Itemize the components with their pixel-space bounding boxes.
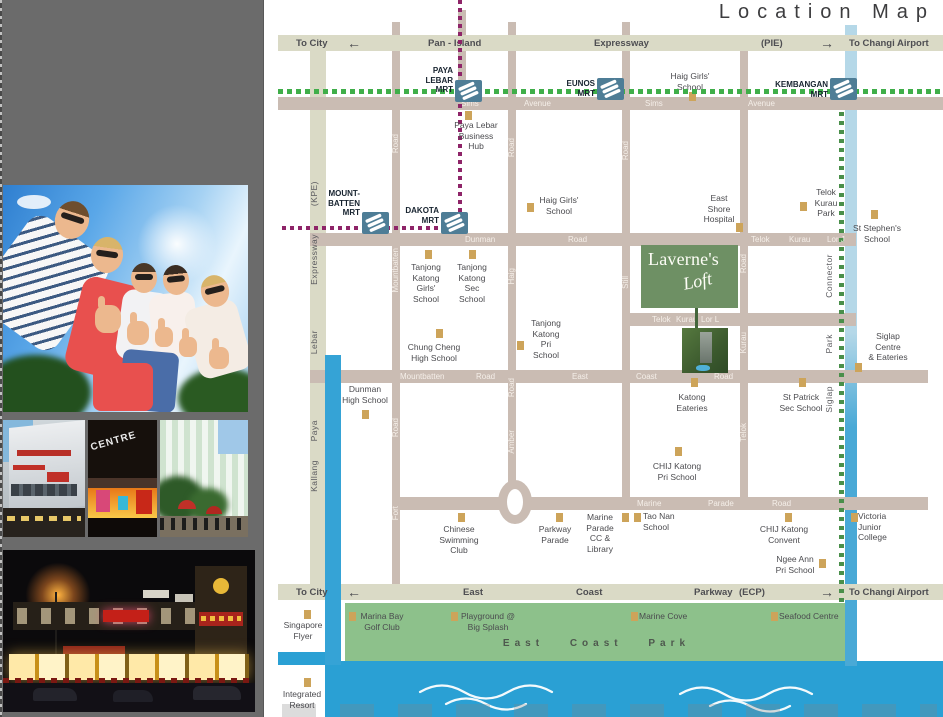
head-3 [131, 263, 157, 293]
road-name-label: Kurau [789, 235, 810, 244]
vertical-road-label: Telok [739, 423, 748, 442]
vertical-road-label: Still [621, 276, 630, 289]
expressway-label: Parkway [694, 587, 733, 598]
right-arrow-icon: → [820, 36, 834, 50]
st-patrick-sec-school-label: St Patrick Sec School [772, 392, 830, 413]
amber-roundabout [498, 480, 532, 524]
left-arrow-icon: ← [347, 585, 361, 599]
road-name-label: Lor J [827, 235, 845, 244]
cyan-sign [118, 496, 128, 510]
expressway-label: To Changi Airport [849, 587, 929, 598]
left-arrow-icon: ← [347, 36, 361, 50]
vertical-road-label: Road [621, 141, 630, 160]
kembangan-mrt-icon [830, 78, 857, 100]
victoria-junior-college-label: Victoria Junior College [858, 511, 898, 543]
road-name-label: Telok [751, 235, 770, 244]
mall-lights [7, 516, 81, 521]
siglap-canal-lower [845, 600, 857, 666]
vertical-road-label: Fort [391, 506, 400, 520]
mrt-logo-icon [597, 78, 624, 100]
car-2 [113, 690, 153, 702]
right-arrow-icon: → [820, 585, 834, 599]
dakota-mrt-label: DAKOTA MRT [394, 206, 439, 225]
red-sign [136, 490, 152, 514]
vertical-road-label: Haig [507, 268, 516, 284]
car-3 [193, 686, 241, 700]
road-name-label: Avenue [524, 99, 551, 108]
marine-parade-cc-library-marker [622, 513, 629, 522]
road-name-label: Coast [636, 372, 657, 381]
red-shorts [93, 363, 153, 411]
property-pool [696, 365, 710, 371]
tanjong-katong-pri-school-label: Tanjong Katong Pri School [524, 318, 568, 361]
singapore-flyer-marker [304, 610, 311, 619]
mall-window-band [11, 484, 77, 496]
tao-nan-school-label: Tao Nan School [643, 511, 683, 532]
mall-red-band-2 [13, 465, 45, 470]
thumbs-up-3 [155, 327, 173, 347]
crowd [160, 518, 248, 530]
photo-lifestyle-thumbs-up [3, 185, 248, 412]
parkway-parade-label: Parkway Parade [531, 524, 579, 545]
tanjong-katong-girls-school-label: Tanjong Katong Girls' School [402, 262, 450, 305]
vertical-road-label: Road [507, 138, 516, 157]
vertical-road-label: Road [507, 378, 516, 397]
mountbatten-mrt-icon [362, 212, 389, 234]
banner-characters [201, 616, 241, 621]
expressway-label: Expressway [594, 38, 649, 49]
marine-parade-cc-library-label: Marine Parade CC & Library [578, 512, 622, 555]
round-sign [213, 578, 229, 594]
vertical-road-label: Kurau [739, 332, 748, 353]
road-kpe [310, 35, 326, 600]
neon-sign [103, 610, 149, 622]
thumbs-up-4 [179, 337, 197, 357]
expressway-label: East [463, 587, 483, 598]
centre-sign-text: CENTRE [89, 430, 137, 454]
ngee-ann-pri-school-label: Ngee Ann Pri School [772, 554, 818, 575]
haig-girls-school-label: Haig Girls' School [536, 195, 582, 216]
awning-red [63, 646, 125, 654]
road-name-label: Road [476, 372, 495, 381]
eunos-mrt-icon [597, 78, 624, 100]
thumbs-up-5 [209, 347, 229, 369]
playground-big-splash-marker [451, 612, 458, 621]
expressway-label: (ECP) [739, 587, 765, 598]
vertical-road-label: Kallang [309, 460, 319, 492]
integrated-resort-marker [304, 678, 311, 687]
expressway-label: (PIE) [761, 38, 783, 49]
logo-sub: Loft [681, 268, 714, 295]
location-map-page: CENTRE [0, 0, 943, 717]
siglap-park-connector-line [839, 112, 844, 602]
marina-bay-golf-club-marker [349, 612, 356, 621]
katong-eateries-label: Katong Eateries [666, 392, 718, 413]
dakota-mrt-icon [441, 212, 468, 234]
sky-patch-2 [218, 420, 248, 454]
road-name-label: Avenue [748, 99, 775, 108]
property-photo [682, 328, 728, 373]
road-name-label: Marine [637, 499, 661, 508]
paya-lebar-business-hub-label: Paya Lebar Business Hub [447, 120, 505, 152]
mrt-logo-icon [455, 80, 482, 102]
telok-kurau-park-label: Telok Kurau Park [808, 187, 844, 219]
chinese-swimming-club-label: Chinese Swimming Club [432, 524, 486, 556]
paya-lebar-business-hub-marker [465, 111, 472, 120]
dashed-edge [0, 0, 2, 717]
singapore-flyer-label: Singapore Flyer [280, 620, 326, 641]
telok-kurau-park-marker [800, 202, 807, 211]
vertical-road-label: Road [391, 134, 400, 153]
mall-red-band-1 [17, 450, 71, 456]
mrt-logo-icon [362, 212, 389, 234]
lit-storefronts [9, 654, 249, 680]
water-inlet [278, 652, 326, 665]
vertical-road-label: Lebar [309, 330, 319, 354]
chij-katong-convent-label: CHIJ Katong Convent [755, 524, 813, 545]
page-edge-artifact [282, 704, 937, 717]
vertical-road-label: Park [824, 334, 834, 353]
eunos-mrt-label: EUNOS MRT [548, 79, 595, 98]
seafood-centre-label: Seafood Centre [779, 611, 849, 622]
road-name-label: Mountbatten [400, 372, 444, 381]
tanjong-katong-sec-school-label: Tanjong Katong Sec School [450, 262, 494, 305]
chung-cheng-high-school-marker [436, 329, 443, 338]
road-name-label: Sims [645, 99, 663, 108]
marine-cove-label: Marine Cove [639, 611, 699, 622]
road-name-label: Road [772, 499, 791, 508]
parkway-parade-marker [556, 513, 563, 522]
marine-cove-marker [631, 612, 638, 621]
st-stephens-school-label: St Stephen's School [845, 223, 909, 244]
east-shore-hospital-label: East Shore Hospital [698, 193, 740, 225]
expressway-label: Coast [576, 587, 602, 598]
siglap-centre-eateries-marker [855, 363, 862, 372]
canopy [88, 478, 157, 488]
road-marine-parade [396, 497, 928, 510]
road-name-label: East [572, 372, 588, 381]
photo-modern-building [160, 420, 248, 537]
chij-katong-pri-school-label: CHIJ Katong Pri School [647, 461, 707, 482]
mrt-logo-icon [441, 212, 468, 234]
tanjong-katong-pri-school-marker [517, 341, 524, 350]
lavernes-loft-logo: Laverne's Loft [641, 245, 738, 308]
dunman-high-school-label: Dunman High School [337, 384, 393, 405]
east-coast-park-label: East Coast Park [345, 638, 848, 649]
vertical-road-label: Expressway [309, 234, 319, 285]
mall-base [3, 508, 85, 537]
photo-mall-exterior [3, 420, 85, 537]
page-title: Location Map [640, 1, 935, 24]
haig-girls-school-marker [527, 203, 534, 212]
road-name-label: Road [714, 372, 733, 381]
playground-big-splash-label: Playground @ Big Splash [458, 611, 518, 632]
tanjong-katong-sec-school-marker [469, 250, 476, 259]
photo-shopping-centre-night: CENTRE [88, 420, 157, 537]
integrated-resort-label: Integrated Resort [278, 689, 326, 710]
thumbs-up-2 [127, 321, 149, 345]
tanjong-katong-girls-school-marker [425, 250, 432, 259]
photo-night-shophouses [3, 550, 255, 712]
siglap-centre-eateries-label: Siglap Centre & Eateries [863, 331, 913, 363]
vertical-road-label: Amber [507, 430, 516, 454]
victoria-junior-college-marker [851, 513, 858, 522]
expressway-label: To City [296, 38, 328, 49]
chung-cheng-high-school-label: Chung Cheng High School [402, 342, 466, 363]
kembangan-mrt-label: KEMBANGAN MRT [767, 80, 828, 99]
expressway-label: To City [296, 587, 328, 598]
paya-lebar-mrt-icon [455, 80, 482, 102]
street-dark [88, 518, 157, 537]
pink-sign [96, 490, 110, 512]
mrt-logo-icon [830, 78, 857, 100]
road-name-label: Lor L [701, 315, 719, 324]
tao-nan-school-marker [634, 513, 641, 522]
vertical-road-label: Road [739, 254, 748, 273]
chinese-swimming-club-marker [458, 513, 465, 522]
expressway-label: To Changi Airport [849, 38, 929, 49]
small-sign-2 [175, 594, 193, 602]
paya-lebar-mrt-label: PAYA LEBAR MRT [405, 66, 453, 95]
road-name-label: Road [568, 235, 587, 244]
small-sign-1 [143, 590, 169, 598]
mountbatten-mrt-label: MOUNT- BATTEN MRT [315, 189, 360, 218]
road-name-label: Dunman [465, 235, 495, 244]
property-building [700, 332, 712, 364]
seafood-centre-marker [771, 612, 778, 621]
vertical-road-label: Paya [309, 420, 319, 441]
chij-katong-convent-marker [785, 513, 792, 522]
chij-katong-pri-school-marker [675, 447, 682, 456]
thumbs-up-1 [95, 305, 121, 333]
dunman-high-school-marker [362, 410, 369, 419]
marina-bay-golf-club-label: Marina Bay Golf Club [356, 611, 408, 632]
ngee-ann-pri-school-marker [819, 559, 826, 568]
vertical-road-label: Road [391, 418, 400, 437]
photo-sidebar: CENTRE [0, 0, 264, 717]
logo-name: Laverne's [648, 249, 719, 270]
road-name-label: Parade [708, 499, 734, 508]
vertical-road-label: Connector [824, 254, 834, 298]
mall-red-sign [47, 472, 69, 482]
vertical-road-label: Mountbatten [391, 248, 400, 292]
st-patrick-sec-school-marker [799, 378, 806, 387]
cloud [17, 195, 51, 209]
katong-eateries-marker [691, 378, 698, 387]
circle-line-vertical [458, 0, 462, 230]
st-stephens-school-marker [871, 210, 878, 219]
expressway-label: Pan - Island [428, 38, 481, 49]
car-1 [33, 688, 77, 701]
road-name-label: Telok [652, 315, 671, 324]
